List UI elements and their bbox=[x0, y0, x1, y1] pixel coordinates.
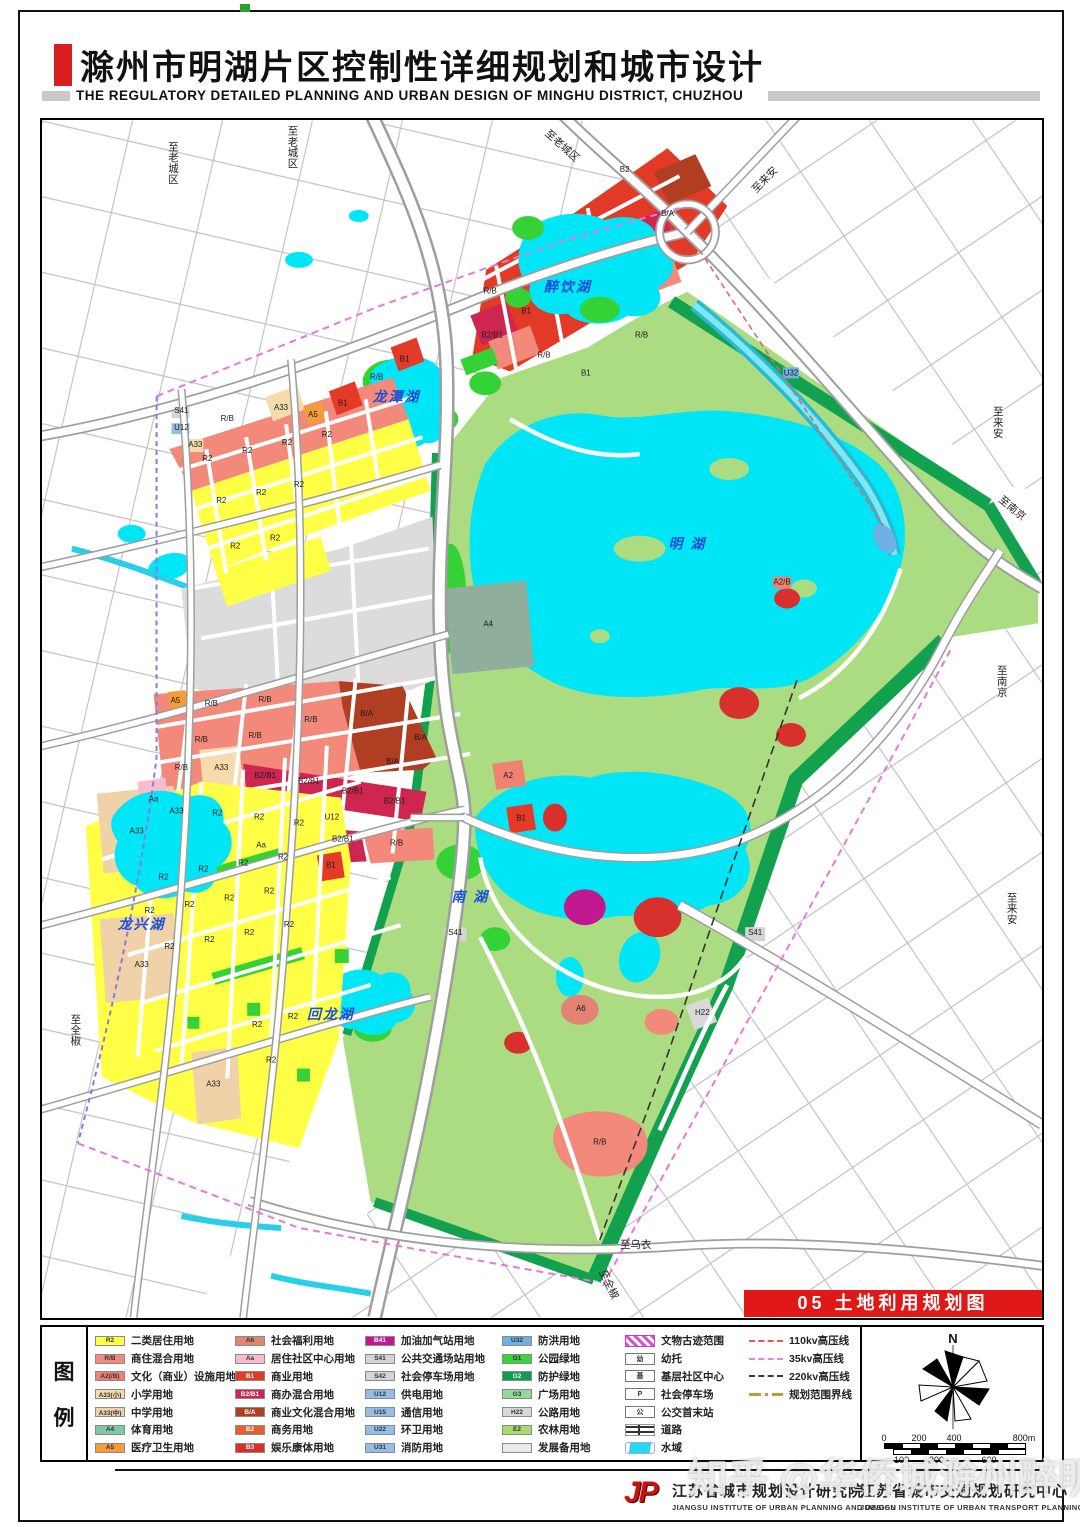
legend-label: 商业用地 bbox=[271, 1369, 313, 1384]
legend-label: 广场用地 bbox=[538, 1387, 580, 1402]
legend-item: A33(小)小学用地 bbox=[95, 1385, 236, 1403]
legend-label: 道路 bbox=[661, 1422, 682, 1437]
svg-text:R2: R2 bbox=[264, 886, 275, 895]
svg-text:R2: R2 bbox=[284, 920, 295, 929]
legend-label: 加油加气站用地 bbox=[401, 1333, 475, 1348]
svg-text:U12: U12 bbox=[325, 813, 340, 822]
svg-text:至来安: 至来安 bbox=[993, 406, 1004, 440]
legend-item: G2防护绿地 bbox=[502, 1368, 591, 1386]
box-icon: 基 bbox=[625, 1370, 655, 1382]
landuse-map: B2B/AR/BB1B2/B1R/BB1R/BS41U12A33R/BA33A5… bbox=[40, 118, 1044, 1320]
legend-column-utility: B41加油加气站用地S41公共交通场站用地S42社会停车场用地U12供电用地U1… bbox=[365, 1332, 485, 1457]
svg-text:至老城区: 至老城区 bbox=[168, 141, 179, 186]
water-icon bbox=[625, 1442, 655, 1454]
legend-label: 220kv高压线 bbox=[789, 1369, 850, 1384]
svg-text:R2: R2 bbox=[322, 430, 333, 439]
svg-text:R2: R2 bbox=[244, 928, 255, 937]
scale-label: 300 bbox=[929, 1455, 944, 1465]
legend-item: A6社会福利用地 bbox=[235, 1332, 355, 1350]
svg-text:R2: R2 bbox=[278, 852, 289, 861]
svg-text:R/B: R/B bbox=[249, 731, 262, 740]
legend-item: 道路 bbox=[625, 1421, 724, 1439]
svg-text:R2: R2 bbox=[184, 900, 195, 909]
svg-text:R2: R2 bbox=[254, 813, 265, 822]
legend-label: 医疗卫生用地 bbox=[131, 1440, 194, 1455]
svg-text:S41: S41 bbox=[174, 406, 189, 415]
legend-item: B2商务用地 bbox=[235, 1421, 355, 1439]
legend-label: 防洪用地 bbox=[538, 1333, 580, 1348]
legend-label: 小学用地 bbox=[131, 1387, 173, 1402]
legend-item: A5医疗卫生用地 bbox=[95, 1439, 236, 1457]
legend-swatch: S41 bbox=[365, 1354, 395, 1364]
svg-text:B/A: B/A bbox=[386, 757, 400, 766]
legend-item: G3广场用地 bbox=[502, 1385, 591, 1403]
svg-text:R2: R2 bbox=[294, 819, 305, 828]
svg-text:R/B: R/B bbox=[175, 763, 188, 772]
scale-label: 0 bbox=[881, 1433, 886, 1443]
legend-label: 商业文化混合用地 bbox=[271, 1405, 355, 1420]
legend-label: 环卫用地 bbox=[401, 1422, 443, 1437]
svg-text:龙潭湖: 龙潭湖 bbox=[372, 388, 422, 404]
page-title: 滁州市明湖片区控制性详细规划和城市设计 bbox=[80, 40, 764, 89]
legend-label: 规划范围界线 bbox=[789, 1387, 852, 1402]
svg-text:R/B: R/B bbox=[258, 695, 271, 704]
svg-text:Aa: Aa bbox=[149, 795, 159, 804]
legend-swatch bbox=[502, 1443, 532, 1453]
legend-item: U22环卫用地 bbox=[365, 1421, 485, 1439]
svg-text:R2: R2 bbox=[158, 872, 169, 881]
legend-swatch: U22 bbox=[365, 1425, 395, 1435]
page-subtitle: THE REGULATORY DETAILED PLANNING AND URB… bbox=[76, 88, 743, 103]
legend-item: U15通信用地 bbox=[365, 1403, 485, 1421]
svg-text:R2: R2 bbox=[164, 942, 175, 951]
legend-item: 水域 bbox=[625, 1439, 724, 1457]
landuse-map-canvas: B2B/AR/BB1B2/B1R/BB1R/BS41U12A33R/BA33A5… bbox=[42, 120, 1042, 1318]
legend-item: B2/B1商办混合用地 bbox=[235, 1385, 355, 1403]
legend-item: 公公交首末站 bbox=[625, 1403, 724, 1421]
legend-item: S41公共交通场站用地 bbox=[365, 1350, 485, 1368]
svg-text:B1: B1 bbox=[400, 354, 410, 363]
legend-swatch: R2 bbox=[95, 1336, 125, 1346]
footer-divider bbox=[115, 1469, 1040, 1471]
legend-label: 消防用地 bbox=[401, 1440, 443, 1455]
legend-item: Aa居住社区中心用地 bbox=[235, 1350, 355, 1368]
svg-text:R/B: R/B bbox=[195, 735, 208, 744]
svg-text:B1: B1 bbox=[326, 860, 336, 869]
svg-text:R/B: R/B bbox=[537, 350, 550, 359]
svg-text:B2/B1: B2/B1 bbox=[254, 771, 276, 780]
svg-text:R2: R2 bbox=[266, 1056, 277, 1065]
svg-text:A33: A33 bbox=[214, 763, 229, 772]
svg-text:明 湖: 明 湖 bbox=[669, 536, 708, 552]
svg-text:R2: R2 bbox=[294, 480, 305, 489]
legend-item: 110kv高压线 bbox=[749, 1332, 852, 1350]
dash-red-line-icon bbox=[749, 1340, 783, 1342]
svg-text:B1: B1 bbox=[581, 368, 591, 377]
compass-rose-icon bbox=[911, 1343, 995, 1431]
legend-label: 社会福利用地 bbox=[271, 1333, 334, 1348]
box-icon: 公 bbox=[625, 1406, 655, 1418]
svg-text:B1: B1 bbox=[338, 398, 348, 407]
legend-swatch: U15 bbox=[365, 1407, 395, 1417]
legend-item: B1商业用地 bbox=[235, 1368, 355, 1386]
svg-text:醉饮湖: 醉饮湖 bbox=[544, 279, 593, 295]
svg-text:B2/B1: B2/B1 bbox=[481, 331, 503, 340]
legend-label: 基层社区中心 bbox=[661, 1369, 724, 1384]
svg-text:至老城区: 至老城区 bbox=[288, 125, 299, 170]
svg-text:R/B: R/B bbox=[593, 1137, 606, 1146]
legend-label: 商住混合用地 bbox=[131, 1351, 194, 1366]
svg-text:R/B: R/B bbox=[370, 372, 383, 381]
legend-label: 社会停车场用地 bbox=[401, 1369, 475, 1384]
svg-text:B/A: B/A bbox=[414, 733, 428, 742]
legend-item: 发展备用地 bbox=[502, 1439, 591, 1457]
legend-swatch: A33(中) bbox=[95, 1407, 125, 1417]
legend-swatch: G2 bbox=[502, 1371, 532, 1381]
road-icon bbox=[625, 1424, 655, 1436]
legend-item: U31消防用地 bbox=[365, 1439, 485, 1457]
svg-text:R/B: R/B bbox=[484, 287, 497, 296]
legend-title-char-1: 图 bbox=[54, 1356, 75, 1386]
svg-text:至全椒: 至全椒 bbox=[71, 1014, 82, 1048]
legend-label: 文化（商业）设施用地 bbox=[131, 1369, 236, 1384]
legend-swatch: A33(小) bbox=[95, 1389, 125, 1399]
legend-column-green: U32防洪用地G1公园绿地G2防护绿地G3广场用地H22公路用地E2农林用地发展… bbox=[502, 1332, 591, 1457]
legend-item: 文物古迹范围 bbox=[625, 1332, 724, 1350]
svg-text:R2: R2 bbox=[252, 1020, 263, 1029]
legend-item: U12供电用地 bbox=[365, 1385, 485, 1403]
svg-text:南 湖: 南 湖 bbox=[451, 888, 490, 904]
svg-text:S41: S41 bbox=[448, 928, 463, 937]
institute-logo: JP bbox=[624, 1476, 657, 1510]
legend-item: 幼幼托 bbox=[625, 1350, 724, 1368]
svg-text:R/B: R/B bbox=[390, 838, 403, 847]
svg-text:R2: R2 bbox=[230, 542, 241, 551]
svg-text:R2: R2 bbox=[212, 809, 223, 818]
svg-text:H22: H22 bbox=[695, 1008, 710, 1017]
legend-item: 基基层社区中心 bbox=[625, 1368, 724, 1386]
legend-label: 中学用地 bbox=[131, 1405, 173, 1420]
svg-text:U32: U32 bbox=[784, 368, 799, 377]
svg-text:A4: A4 bbox=[483, 619, 493, 628]
heritage-icon bbox=[625, 1335, 655, 1347]
svg-text:R2: R2 bbox=[202, 454, 213, 463]
legend-label: 居住社区中心用地 bbox=[271, 1351, 355, 1366]
svg-text:A33: A33 bbox=[206, 1080, 221, 1089]
dashdot-orange-line-icon bbox=[749, 1393, 783, 1396]
svg-text:至南京: 至南京 bbox=[997, 665, 1007, 699]
subtitle-bar-left bbox=[42, 91, 70, 101]
box-icon: P bbox=[625, 1388, 655, 1400]
legend-label: 幼托 bbox=[661, 1351, 682, 1366]
legend-label: 公园绿地 bbox=[538, 1351, 580, 1366]
legend-item: P社会停车场 bbox=[625, 1385, 724, 1403]
legend-label: 110kv高压线 bbox=[789, 1333, 849, 1348]
legend-swatch: B1 bbox=[235, 1371, 265, 1381]
legend-item: E2农林用地 bbox=[502, 1421, 591, 1439]
legend-swatch: A5 bbox=[95, 1443, 125, 1453]
legend-item: 35kv高压线 bbox=[749, 1350, 852, 1368]
legend-item: A2(/B)文化（商业）设施用地 bbox=[95, 1368, 236, 1386]
legend-north-scale-cell: N 0200400800m 100300600 bbox=[860, 1327, 1044, 1460]
svg-text:U12: U12 bbox=[174, 423, 189, 432]
legend-swatch: R/B bbox=[95, 1354, 125, 1364]
legend-item: R2二类居住用地 bbox=[95, 1332, 236, 1350]
legend-swatch: U12 bbox=[365, 1389, 395, 1399]
svg-text:B2/B1: B2/B1 bbox=[342, 787, 364, 796]
legend-swatch: B/A bbox=[235, 1407, 265, 1417]
svg-text:R2: R2 bbox=[256, 488, 267, 497]
legend-label: 商务用地 bbox=[271, 1422, 313, 1437]
legend-swatch: S42 bbox=[365, 1371, 395, 1381]
legend-swatch: H22 bbox=[502, 1407, 532, 1417]
svg-text:R/B: R/B bbox=[205, 699, 218, 708]
svg-text:B1: B1 bbox=[521, 307, 531, 316]
legend-swatch: B2 bbox=[235, 1425, 265, 1435]
legend-column-commercial: A6社会福利用地Aa居住社区中心用地B1商业用地B2/B1商办混合用地B/A商业… bbox=[235, 1332, 355, 1457]
subtitle-bar-right bbox=[768, 91, 1040, 101]
svg-text:R/B: R/B bbox=[221, 414, 234, 423]
corner-mark bbox=[240, 4, 250, 12]
legend-label: 发展备用地 bbox=[538, 1440, 591, 1455]
svg-text:R2: R2 bbox=[144, 906, 155, 915]
legend-item: B3娱乐康体用地 bbox=[235, 1439, 355, 1457]
svg-text:B2/B1: B2/B1 bbox=[298, 777, 320, 786]
legend-label: 公交首末站 bbox=[661, 1405, 714, 1420]
svg-text:A33: A33 bbox=[130, 827, 145, 836]
title-red-square bbox=[54, 44, 72, 86]
svg-text:B1: B1 bbox=[516, 814, 526, 823]
svg-text:B/A: B/A bbox=[360, 709, 374, 718]
legend-swatch: G3 bbox=[502, 1389, 532, 1399]
legend-item: B41加油加气站用地 bbox=[365, 1332, 485, 1350]
legend-item: A33(中)中学用地 bbox=[95, 1403, 236, 1421]
dash-pink-line-icon bbox=[749, 1358, 783, 1360]
legend-label: 防护绿地 bbox=[538, 1369, 580, 1384]
institute-2-name-cn: 江苏省城市交通规划研究中心 bbox=[860, 1480, 1080, 1501]
legend-label: 体育用地 bbox=[131, 1422, 173, 1437]
legend-item: A4体育用地 bbox=[95, 1421, 236, 1439]
svg-text:至来安: 至来安 bbox=[1007, 892, 1018, 926]
scale-label: 200 bbox=[911, 1433, 926, 1443]
legend-item: R/B商住混合用地 bbox=[95, 1350, 236, 1368]
legend-swatch: B2/B1 bbox=[235, 1389, 265, 1399]
scale-label: 400 bbox=[946, 1433, 961, 1443]
legend-swatch: U32 bbox=[502, 1336, 532, 1346]
svg-text:Aa: Aa bbox=[256, 840, 266, 849]
svg-text:B2: B2 bbox=[620, 165, 630, 174]
legend-item: 规划范围界线 bbox=[749, 1385, 852, 1403]
legend-label: 公路用地 bbox=[538, 1405, 580, 1420]
institute-2-name-en: JIANGSU INSTITUTE OF URBAN TRANSPORT PLA… bbox=[860, 1503, 1080, 1512]
scale-label: 600 bbox=[981, 1455, 996, 1465]
legend-swatch: A2(/B) bbox=[95, 1371, 125, 1381]
legend-item: S42社会停车场用地 bbox=[365, 1368, 485, 1386]
svg-text:B/A: B/A bbox=[661, 209, 675, 218]
legend-swatch: Aa bbox=[235, 1354, 265, 1364]
legend-column-symbols: 文物古迹范围幼幼托基基层社区中心P社会停车场公公交首末站道路水域 bbox=[625, 1332, 724, 1457]
svg-text:B2/B1: B2/B1 bbox=[384, 797, 406, 806]
scale-label: 100 bbox=[894, 1455, 909, 1465]
legend-swatch: U31 bbox=[365, 1443, 395, 1453]
legend-label: 供电用地 bbox=[401, 1387, 443, 1402]
legend-item: U32防洪用地 bbox=[502, 1332, 591, 1350]
svg-text:龙兴湖: 龙兴湖 bbox=[117, 916, 167, 932]
legend-item: B/A商业文化混合用地 bbox=[235, 1403, 355, 1421]
svg-text:A33: A33 bbox=[274, 403, 289, 412]
map-sheet-banner: 05 土地利用规划图 bbox=[744, 1290, 1042, 1317]
svg-text:至乌衣: 至乌衣 bbox=[620, 1238, 652, 1251]
legend-swatch: B41 bbox=[365, 1336, 395, 1346]
svg-text:R2: R2 bbox=[238, 858, 249, 867]
legend-swatch: A6 bbox=[235, 1336, 265, 1346]
map-sheet-title: 05 土地利用规划图 bbox=[797, 1293, 988, 1313]
institute-2: 江苏省城市交通规划研究中心 JIANGSU INSTITUTE OF URBAN… bbox=[860, 1480, 1080, 1512]
svg-text:R2: R2 bbox=[198, 864, 209, 873]
svg-text:R2: R2 bbox=[216, 496, 227, 505]
scale-bar: 0200400800m 100300600 bbox=[884, 1433, 1024, 1459]
legend-label: 通信用地 bbox=[401, 1405, 443, 1420]
svg-text:A33: A33 bbox=[135, 960, 150, 969]
legend-label: 公共交通场站用地 bbox=[401, 1351, 485, 1366]
svg-text:A5: A5 bbox=[308, 410, 318, 419]
svg-text:R2: R2 bbox=[282, 438, 293, 447]
legend-title: 图 例 bbox=[42, 1327, 88, 1460]
svg-text:R/B: R/B bbox=[304, 715, 317, 724]
legend-item: H22公路用地 bbox=[502, 1403, 591, 1421]
svg-text:S41: S41 bbox=[748, 928, 763, 937]
legend-swatch: G1 bbox=[502, 1354, 532, 1364]
legend-label: 商办混合用地 bbox=[271, 1387, 334, 1402]
dash-black-line-icon bbox=[749, 1375, 783, 1377]
svg-text:A6: A6 bbox=[576, 1004, 586, 1013]
svg-text:A2: A2 bbox=[503, 771, 513, 780]
svg-text:A2/B: A2/B bbox=[773, 578, 790, 587]
scale-label: 800m bbox=[1013, 1433, 1036, 1443]
legend-label: 水域 bbox=[661, 1440, 682, 1455]
legend-panel: 图 例 R2二类居住用地R/B商住混合用地A2(/B)文化（商业）设施用地A33… bbox=[40, 1325, 1044, 1462]
legend-column-lines: 110kv高压线35kv高压线220kv高压线规划范围界线 bbox=[749, 1332, 852, 1403]
legend-label: 娱乐康体用地 bbox=[271, 1440, 334, 1455]
svg-text:A33: A33 bbox=[188, 440, 203, 449]
legend-label: 社会停车场 bbox=[661, 1387, 714, 1402]
svg-text:A33: A33 bbox=[169, 807, 184, 816]
svg-text:R2: R2 bbox=[224, 893, 235, 902]
legend-swatch: A4 bbox=[95, 1425, 125, 1435]
legend-label: 35kv高压线 bbox=[789, 1351, 844, 1366]
svg-text:回龙湖: 回龙湖 bbox=[307, 1006, 356, 1022]
svg-text:R2: R2 bbox=[270, 534, 281, 543]
svg-text:B2/B1: B2/B1 bbox=[332, 835, 354, 844]
svg-text:R/B: R/B bbox=[635, 331, 648, 340]
planning-poster: 滁州市明湖片区控制性详细规划和城市设计 THE REGULATORY DETAI… bbox=[0, 0, 1080, 1527]
legend-swatch: E2 bbox=[502, 1425, 532, 1435]
svg-text:R2: R2 bbox=[288, 1012, 299, 1021]
legend-column-residential: R2二类居住用地R/B商住混合用地A2(/B)文化（商业）设施用地A33(小)小… bbox=[95, 1332, 236, 1457]
legend-swatch: B3 bbox=[235, 1443, 265, 1453]
svg-text:R2: R2 bbox=[242, 446, 253, 455]
svg-text:R2: R2 bbox=[204, 935, 215, 944]
legend-item: 220kv高压线 bbox=[749, 1368, 852, 1386]
legend-label: 二类居住用地 bbox=[131, 1333, 194, 1348]
legend-item: G1公园绿地 bbox=[502, 1350, 591, 1368]
legend-title-char-2: 例 bbox=[54, 1402, 75, 1432]
box-icon: 幼 bbox=[625, 1353, 655, 1365]
svg-text:A5: A5 bbox=[171, 696, 181, 705]
legend-label: 农林用地 bbox=[538, 1422, 580, 1437]
legend-label: 文物古迹范围 bbox=[661, 1333, 724, 1348]
